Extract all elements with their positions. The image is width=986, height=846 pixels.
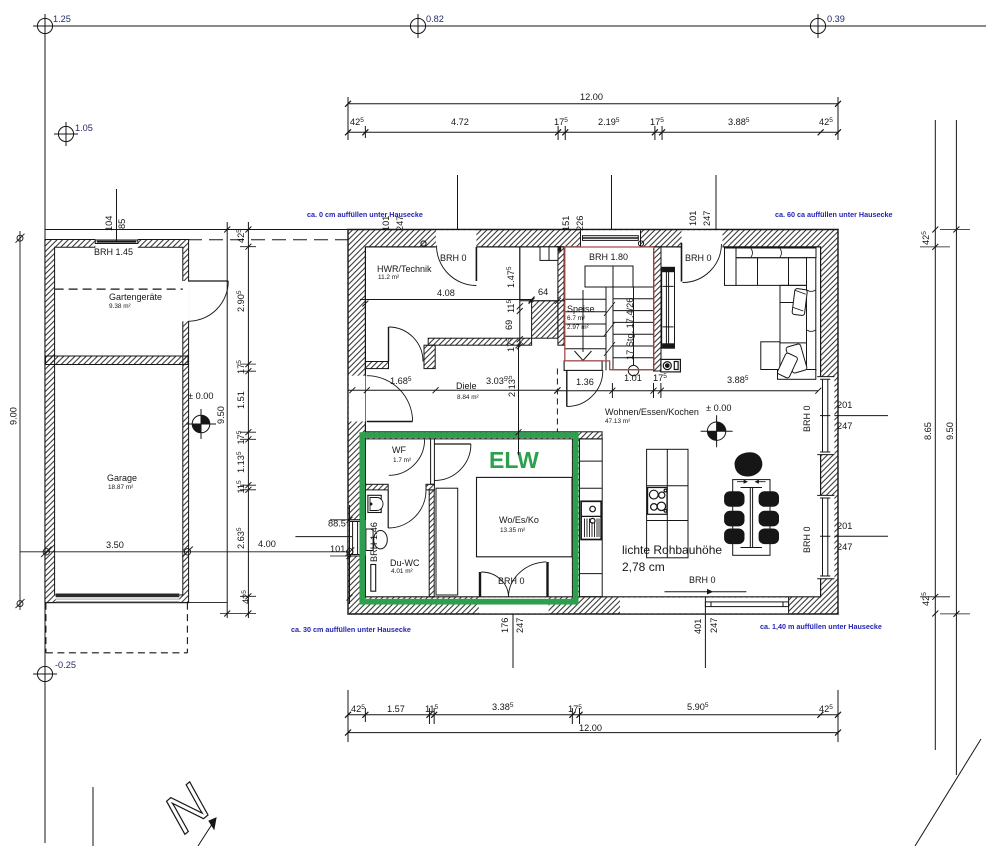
svg-text:1.475: 1.475	[506, 266, 516, 288]
svg-text:69: 69	[504, 320, 514, 330]
svg-text:13.35 m²: 13.35 m²	[500, 527, 525, 534]
svg-text:425: 425	[241, 590, 251, 604]
svg-text:8.84 m²: 8.84 m²	[457, 394, 479, 401]
svg-text:BRH 1.46: BRH 1.46	[369, 522, 379, 562]
svg-text:85: 85	[117, 219, 127, 229]
svg-text:BRH 1.45: BRH 1.45	[94, 247, 133, 257]
svg-text:BRH 0: BRH 0	[802, 405, 812, 432]
svg-text:0.82: 0.82	[426, 14, 444, 24]
svg-text:1.05: 1.05	[75, 123, 93, 133]
svg-text:2.97 m²: 2.97 m²	[567, 324, 589, 331]
svg-text:1.51: 1.51	[236, 391, 246, 409]
svg-text:247: 247	[837, 542, 852, 552]
svg-text:ca. 60 ca auffüllen unter Haus: ca. 60 ca auffüllen unter Hausecke	[775, 210, 892, 219]
svg-text:BRH 0: BRH 0	[689, 575, 716, 585]
svg-text:425: 425	[819, 704, 833, 714]
svg-text:1.57: 1.57	[387, 704, 405, 714]
svg-text:ca. 1,40 m auffüllen unter Hau: ca. 1,40 m auffüllen unter Hausecke	[760, 622, 882, 631]
svg-text:115: 115	[506, 299, 516, 313]
svg-text:ca. 0 cm auffüllen unter Hause: ca. 0 cm auffüllen unter Hausecke	[307, 210, 423, 219]
svg-text:Garage: Garage	[107, 473, 137, 483]
svg-text:425: 425	[819, 117, 833, 127]
svg-text:BRH 1.80: BRH 1.80	[589, 252, 628, 262]
svg-text:-0.25: -0.25	[55, 660, 76, 670]
svg-text:9.38 m²: 9.38 m²	[109, 303, 131, 310]
svg-text:Wo/Es/Ko: Wo/Es/Ko	[499, 515, 539, 525]
svg-text:9.00: 9.00	[9, 407, 19, 425]
svg-text:Speise: Speise	[567, 304, 595, 314]
svg-text:2.195: 2.195	[598, 117, 620, 127]
svg-text:104: 104	[104, 216, 114, 231]
svg-text:4.00: 4.00	[258, 539, 276, 549]
svg-text:1.685: 1.685	[390, 376, 412, 386]
svg-text:1.01: 1.01	[624, 373, 642, 383]
svg-text:2,78 cm: 2,78 cm	[622, 560, 665, 574]
svg-text:425: 425	[921, 231, 931, 245]
svg-text:2.135: 2.135	[507, 375, 517, 397]
svg-text:9.50: 9.50	[945, 422, 955, 440]
svg-text:BRH 0: BRH 0	[685, 253, 712, 263]
svg-text:176: 176	[500, 618, 510, 633]
svg-text:101: 101	[688, 211, 698, 226]
svg-text:WF: WF	[392, 445, 406, 455]
svg-text:5.905: 5.905	[687, 702, 709, 712]
svg-text:88.5: 88.5	[328, 519, 346, 529]
svg-text:247: 247	[702, 211, 712, 226]
svg-text:425: 425	[236, 229, 246, 243]
svg-text:0.39: 0.39	[827, 14, 845, 24]
svg-text:4.01 m²: 4.01 m²	[391, 568, 413, 575]
svg-text:± 0.00: ± 0.00	[706, 403, 731, 413]
svg-text:BRH 0: BRH 0	[440, 253, 467, 263]
svg-text:6.7 m²: 6.7 m²	[567, 315, 585, 322]
svg-text:ca. 30 cm auffüllen unter Haus: ca. 30 cm auffüllen unter Hausecke	[291, 625, 411, 634]
svg-text:64: 64	[538, 287, 548, 297]
svg-text:11.2 m²: 11.2 m²	[378, 274, 399, 281]
svg-text:115: 115	[236, 480, 246, 494]
svg-text:1.135: 1.135	[236, 451, 246, 473]
svg-text:12.00: 12.00	[579, 723, 602, 733]
svg-text:12.00: 12.00	[580, 92, 603, 102]
svg-text:Du-WC: Du-WC	[390, 558, 420, 568]
svg-text:175: 175	[554, 117, 568, 127]
svg-text:3.035: 3.035	[486, 376, 508, 386]
svg-text:425: 425	[921, 592, 931, 606]
svg-text:8.65: 8.65	[923, 422, 933, 440]
svg-text:± 0.00: ± 0.00	[188, 391, 213, 401]
svg-text:226: 226	[575, 216, 585, 231]
svg-text:Diele: Diele	[456, 381, 477, 391]
svg-text:175: 175	[650, 117, 664, 127]
svg-text:151: 151	[561, 216, 571, 231]
svg-text:9.50: 9.50	[216, 406, 226, 424]
svg-text:3.50: 3.50	[106, 540, 124, 550]
svg-text:HWR/Technik: HWR/Technik	[377, 264, 432, 274]
svg-text:425: 425	[351, 704, 365, 714]
svg-text:4.08: 4.08	[437, 288, 455, 298]
svg-text:Gartengeräte: Gartengeräte	[109, 292, 162, 302]
svg-text:201: 201	[837, 400, 852, 410]
svg-text:247: 247	[709, 618, 719, 633]
svg-text:ELW: ELW	[489, 447, 539, 473]
svg-text:1.7 m²: 1.7 m²	[393, 457, 411, 464]
svg-text:175: 175	[236, 360, 246, 374]
svg-text:BRH 0: BRH 0	[498, 576, 525, 586]
svg-text:BRH 0: BRH 0	[802, 526, 812, 553]
svg-text:17 Stg. 17.4/26: 17 Stg. 17.4/26	[625, 298, 635, 360]
svg-text:247: 247	[515, 618, 525, 633]
svg-text:401: 401	[693, 619, 703, 634]
svg-text:201: 201	[837, 521, 852, 531]
svg-text:2.905: 2.905	[236, 290, 246, 312]
svg-text:1.36: 1.36	[576, 377, 594, 387]
svg-text:Wohnen/Essen/Kochen: Wohnen/Essen/Kochen	[605, 407, 699, 417]
svg-text:3.885: 3.885	[727, 375, 749, 385]
svg-text:3.385: 3.385	[492, 702, 514, 712]
svg-text:47.13 m²: 47.13 m²	[605, 418, 630, 425]
svg-text:4.72: 4.72	[451, 117, 469, 127]
svg-text:1.25: 1.25	[53, 14, 71, 24]
svg-text:175: 175	[653, 373, 667, 383]
svg-text:2.635: 2.635	[236, 527, 246, 549]
svg-text:247: 247	[837, 421, 852, 431]
svg-text:N: N	[153, 773, 222, 845]
svg-text:lichte Rohbauhöhe: lichte Rohbauhöhe	[622, 543, 722, 557]
svg-text:425: 425	[350, 117, 364, 127]
svg-text:3.885: 3.885	[728, 117, 750, 127]
svg-text:175: 175	[568, 704, 582, 714]
svg-text:18.87 m²: 18.87 m²	[108, 484, 133, 491]
svg-text:101: 101	[330, 544, 345, 554]
